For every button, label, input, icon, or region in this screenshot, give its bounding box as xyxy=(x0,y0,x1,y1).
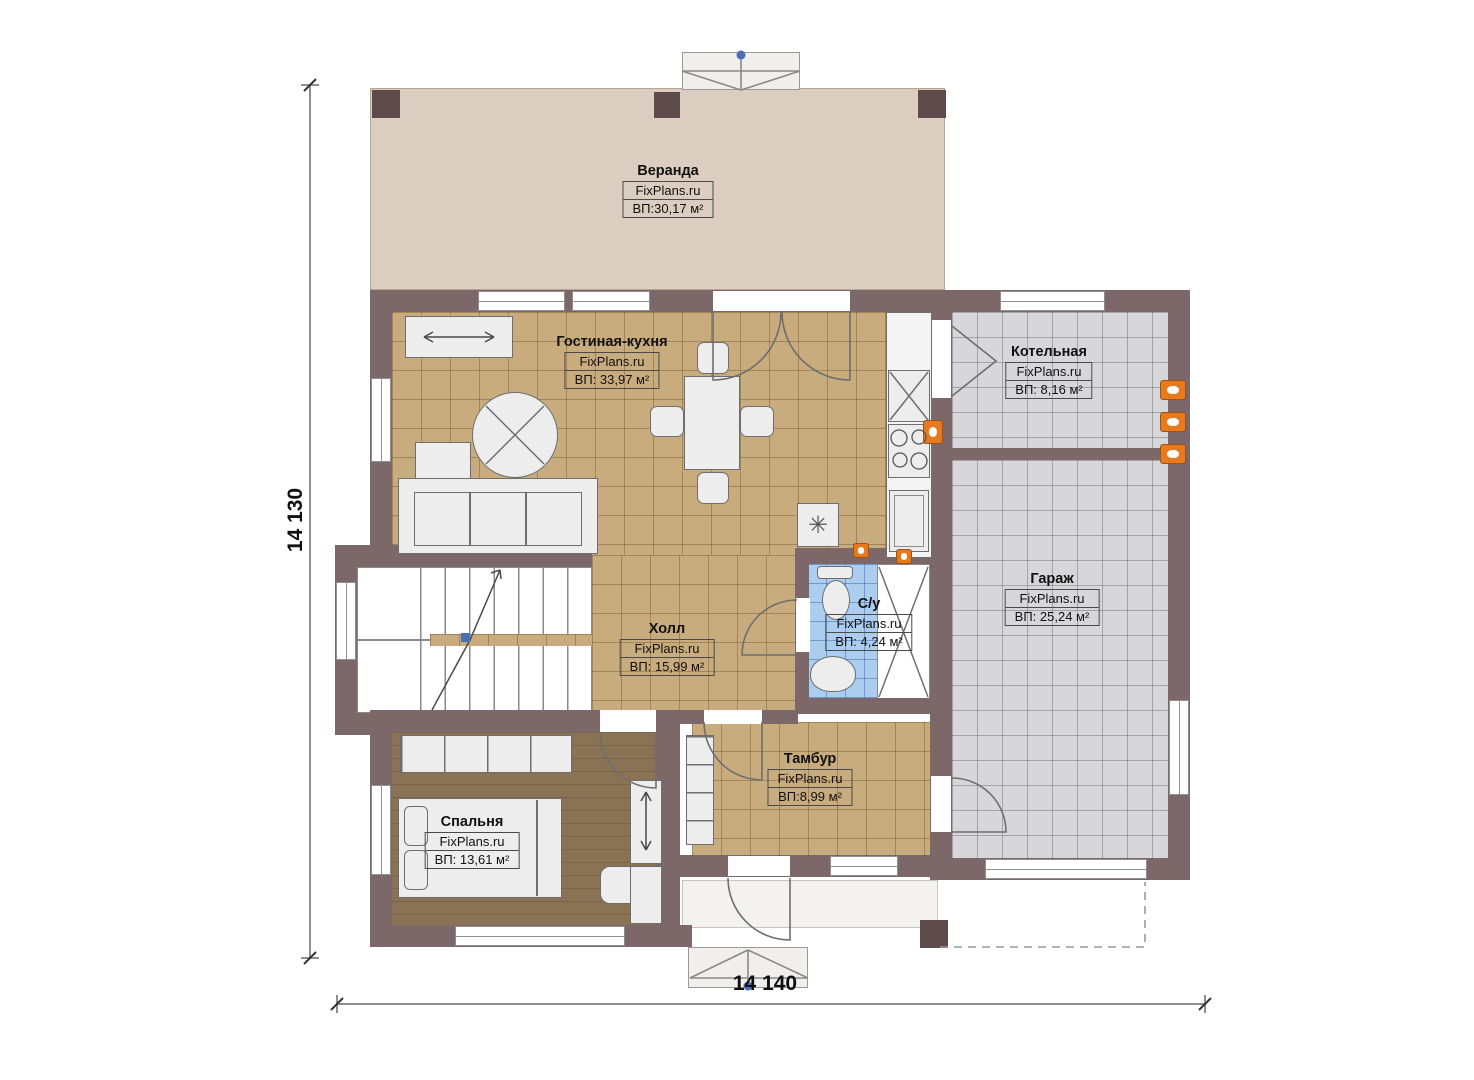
room-area: ВП: 4,24 м² xyxy=(826,633,911,650)
window xyxy=(336,582,356,660)
room-name: Холл xyxy=(620,621,715,637)
room-area: ВП:8,99 м² xyxy=(768,788,851,805)
room-name: С/у xyxy=(825,596,912,612)
bathroom-door-opening xyxy=(796,598,810,652)
dining-table xyxy=(684,376,740,470)
dimension-height: 14 130 xyxy=(284,488,308,552)
window xyxy=(371,378,391,462)
room-brand: FixPlans.ru xyxy=(621,640,714,658)
snowflake-icon: ✳ xyxy=(808,511,828,540)
ac-unit: ✳ xyxy=(797,503,839,547)
window xyxy=(1000,291,1105,311)
bedroom-door-opening xyxy=(600,710,656,732)
window xyxy=(830,856,898,876)
porch-floor xyxy=(682,880,938,928)
sofa-seat xyxy=(470,492,526,546)
radiator-icon xyxy=(1160,380,1186,400)
bathroom-sink xyxy=(810,656,856,692)
floor-plan: ✳ xyxy=(0,0,1474,1080)
room-brand: FixPlans.ru xyxy=(566,353,659,371)
room-area: ВП: 33,97 м² xyxy=(566,371,659,388)
room-label-living-kitchen: Гостиная-кухня FixPlans.ru ВП: 33,97 м² xyxy=(556,334,667,389)
room-brand: FixPlans.ru xyxy=(426,833,519,851)
room-info-box: FixPlans.ru ВП:30,17 м² xyxy=(622,181,713,218)
window xyxy=(1169,700,1189,795)
room-info-box: FixPlans.ru ВП: 25,24 м² xyxy=(1005,589,1100,626)
window xyxy=(572,291,650,311)
room-name: Котельная xyxy=(1005,344,1092,360)
sideboard xyxy=(405,316,513,358)
kitchen-sink xyxy=(888,370,930,422)
dining-chair xyxy=(697,472,729,504)
garage-floor xyxy=(952,460,1168,858)
dresser xyxy=(630,780,662,864)
radiator-icon xyxy=(853,543,869,558)
room-info-box: FixPlans.ru ВП: 15,99 м² xyxy=(620,639,715,676)
room-info-box: FixPlans.ru ВП: 33,97 м² xyxy=(565,352,660,389)
room-name: Тамбур xyxy=(767,751,852,767)
room-name: Гараж xyxy=(1005,571,1100,587)
round-table xyxy=(472,392,558,478)
room-name: Спальня xyxy=(425,814,520,830)
column xyxy=(920,920,948,948)
boiler-door-opening xyxy=(931,320,951,398)
wardrobe xyxy=(400,735,572,773)
hallway-closet xyxy=(686,735,714,845)
room-area: ВП: 15,99 м² xyxy=(621,658,714,675)
room-label-boiler: Котельная FixPlans.ru ВП: 8,16 м² xyxy=(1005,344,1092,399)
radiator-icon xyxy=(1160,444,1186,464)
window xyxy=(455,926,625,946)
column xyxy=(372,90,400,118)
sofa-seat xyxy=(526,492,582,546)
garage-gate-opening xyxy=(985,859,1147,879)
room-label-tambour: Тамбур FixPlans.ru ВП:8,99 м² xyxy=(767,751,852,806)
front-door-opening xyxy=(728,856,790,876)
fridge-inner xyxy=(894,495,924,547)
room-name: Гостиная-кухня xyxy=(556,334,667,350)
hall-tambour-door-opening xyxy=(704,710,762,724)
wall-segment xyxy=(952,448,1168,460)
dining-chair xyxy=(650,406,684,437)
room-area: ВП: 25,24 м² xyxy=(1006,608,1099,625)
room-info-box: FixPlans.ru ВП: 4,24 м² xyxy=(825,614,912,651)
dining-chair xyxy=(697,342,729,374)
room-info-box: FixPlans.ru ВП: 8,16 м² xyxy=(1005,362,1092,399)
room-label-garage: Гараж FixPlans.ru ВП: 25,24 м² xyxy=(1005,571,1100,626)
room-brand: FixPlans.ru xyxy=(1006,590,1099,608)
room-info-box: FixPlans.ru ВП: 13,61 м² xyxy=(425,832,520,869)
room-label-bedroom: Спальня FixPlans.ru ВП: 13,61 м² xyxy=(425,814,520,869)
radiator-icon xyxy=(896,549,912,564)
room-brand: FixPlans.ru xyxy=(826,615,911,633)
column xyxy=(654,92,680,118)
room-label-wc: С/у FixPlans.ru ВП: 4,24 м² xyxy=(825,596,912,651)
room-label-hall: Холл FixPlans.ru ВП: 15,99 м² xyxy=(620,621,715,676)
dining-chair xyxy=(740,406,774,437)
stair-treads-lower xyxy=(420,640,592,712)
wall-segment xyxy=(680,855,940,877)
radiator-icon xyxy=(1160,412,1186,432)
window xyxy=(371,785,391,875)
room-area: ВП:30,17 м² xyxy=(623,200,712,217)
room-label-veranda: Веранда FixPlans.ru ВП:30,17 м² xyxy=(622,163,713,218)
room-area: ВП: 8,16 м² xyxy=(1006,381,1091,398)
veranda-entry-steps xyxy=(682,52,800,90)
room-name: Веранда xyxy=(622,163,713,179)
garage-side-door-opening xyxy=(931,776,951,832)
dimension-width: 14 140 xyxy=(733,972,797,996)
room-brand: FixPlans.ru xyxy=(623,182,712,200)
veranda-door-opening xyxy=(713,291,850,311)
dim-line-bottom xyxy=(337,995,1205,1013)
stair-landing-strip xyxy=(430,634,592,646)
sofa-seat xyxy=(414,492,470,546)
stair-treads-upper xyxy=(420,567,592,639)
bedside-cabinet xyxy=(630,866,662,924)
toilet-tank xyxy=(817,566,853,579)
column xyxy=(918,90,946,118)
porch-dashed-outline xyxy=(940,882,1145,947)
room-info-box: FixPlans.ru ВП:8,99 м² xyxy=(767,769,852,806)
radiator-icon xyxy=(923,420,943,444)
bed-blanket-line xyxy=(536,800,538,896)
wall-segment xyxy=(795,698,932,714)
room-area: ВП: 13,61 м² xyxy=(426,851,519,868)
room-brand: FixPlans.ru xyxy=(768,770,851,788)
room-brand: FixPlans.ru xyxy=(1006,363,1091,381)
window xyxy=(478,291,565,311)
